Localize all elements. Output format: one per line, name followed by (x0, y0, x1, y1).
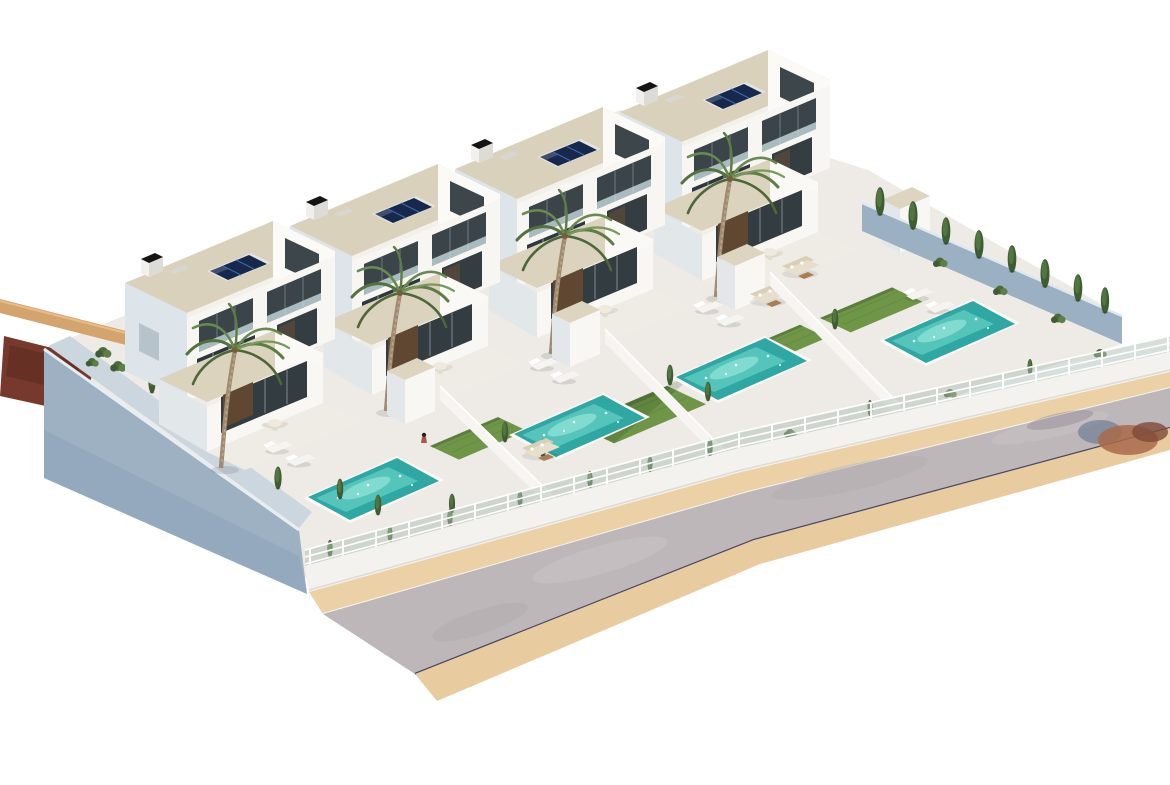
access-road-topleft (0, 299, 126, 345)
architectural-render-page (0, 0, 1170, 785)
villa-development-render (0, 0, 1170, 785)
